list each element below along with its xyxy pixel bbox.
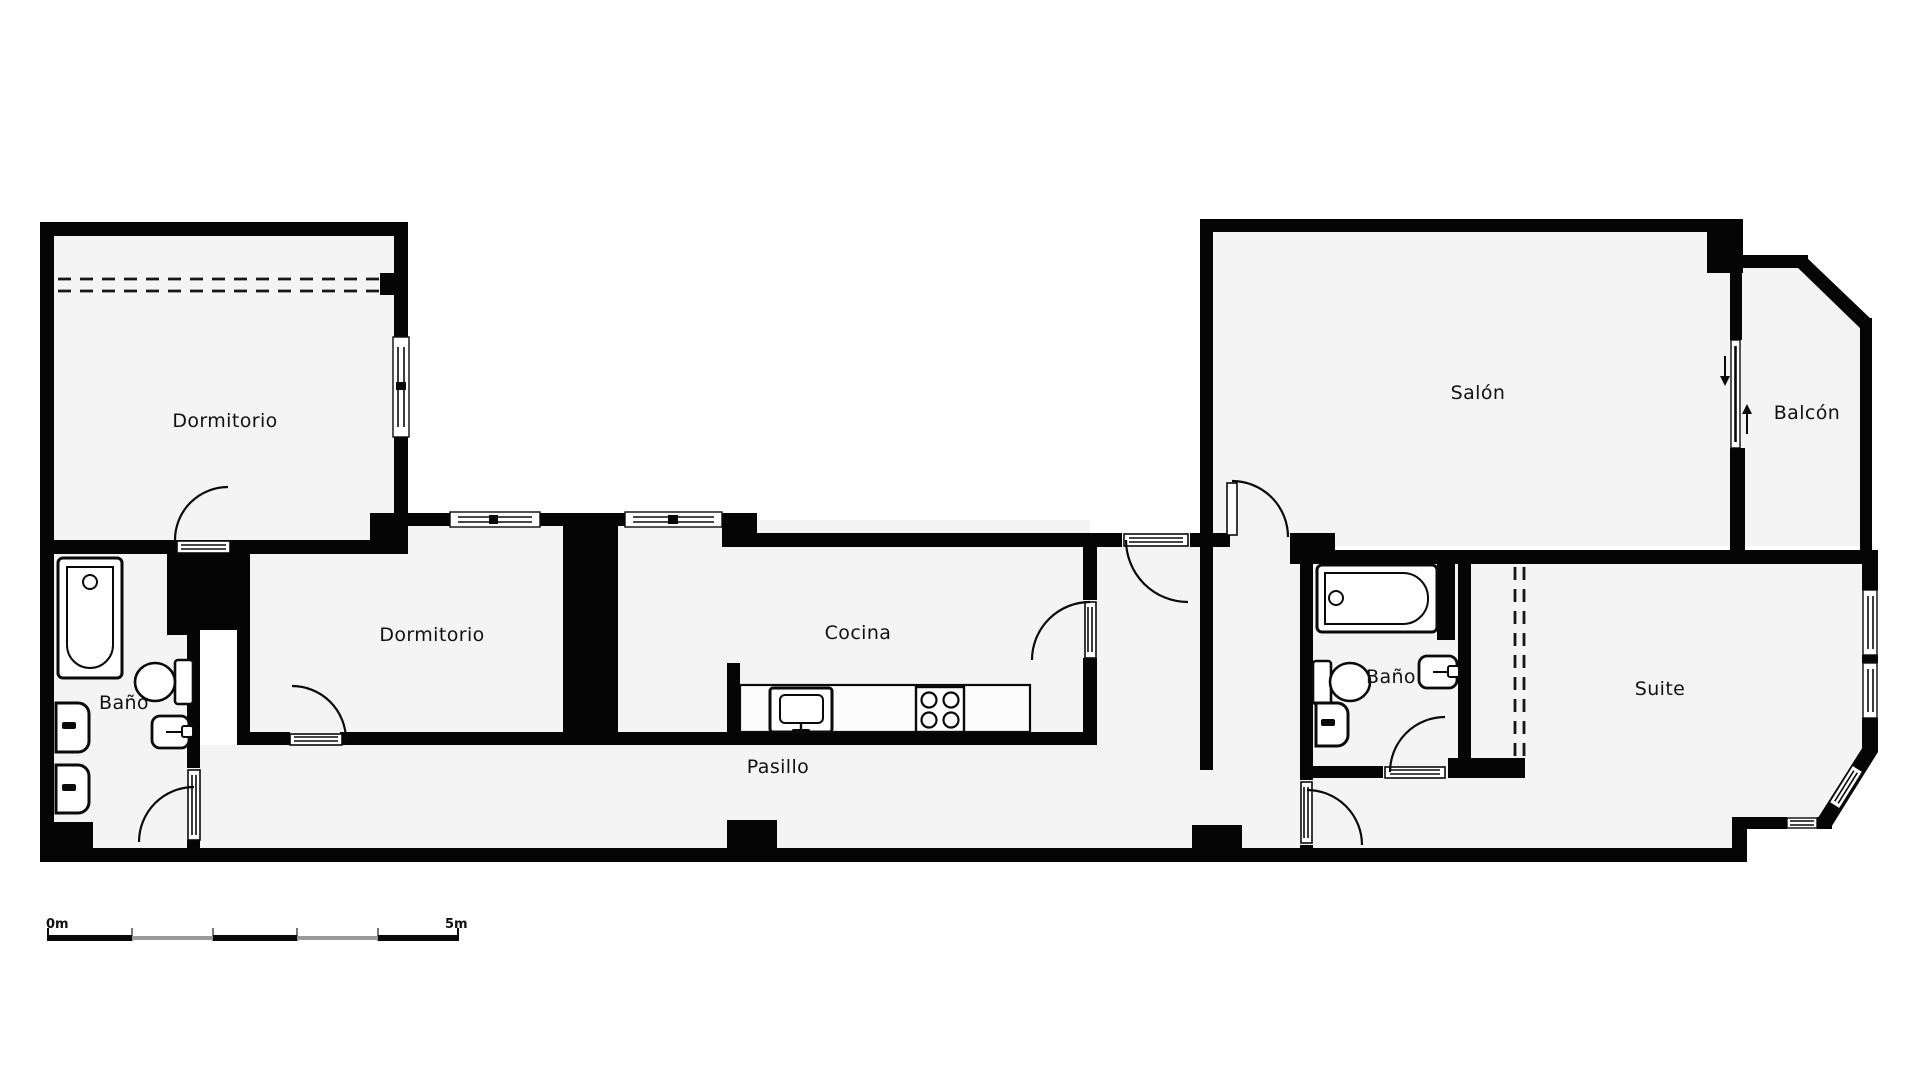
toilet-icon	[1313, 661, 1370, 704]
label-suite: Suite	[1635, 678, 1686, 700]
bidet-icon	[56, 765, 89, 813]
bidet-icon	[56, 703, 89, 752]
bathtub-icon	[1317, 565, 1437, 632]
bathtub-icon	[58, 558, 122, 678]
label-dormitorio-2: Dormitorio	[379, 624, 484, 646]
label-balcon: Balcón	[1774, 402, 1840, 424]
floor-plan-page: Dormitorio Baño Dormitorio Cocina Pasill…	[0, 0, 1920, 1080]
window-icon	[450, 512, 540, 527]
stove-icon	[916, 687, 964, 732]
label-cocina: Cocina	[825, 622, 892, 644]
window-icon	[625, 512, 722, 527]
label-pasillo: Pasillo	[747, 756, 809, 778]
washbasin-icon	[1419, 656, 1459, 688]
floor-vestibule	[1090, 540, 1307, 850]
bidet-icon	[1316, 703, 1348, 746]
window-icon	[1863, 590, 1877, 718]
scale-bar: 0m 5m	[46, 917, 468, 941]
kitchen-sink-icon	[770, 688, 832, 733]
kitchen-fixtures	[740, 685, 1030, 733]
label-dormitorio-1: Dormitorio	[172, 410, 277, 432]
floor-plan-drawing: Dormitorio Baño Dormitorio Cocina Pasill…	[0, 0, 1920, 1080]
label-bano-2: Baño	[1366, 666, 1416, 688]
label-bano-1: Baño	[99, 692, 149, 714]
scale-start-label: 0m	[46, 917, 69, 932]
scale-end-label: 5m	[445, 917, 468, 932]
washbasin-icon	[152, 716, 193, 748]
window-icon	[393, 337, 409, 437]
floor-dormitorio-1	[47, 229, 401, 547]
label-salon: Salón	[1451, 382, 1506, 404]
window-icon	[1787, 818, 1817, 828]
